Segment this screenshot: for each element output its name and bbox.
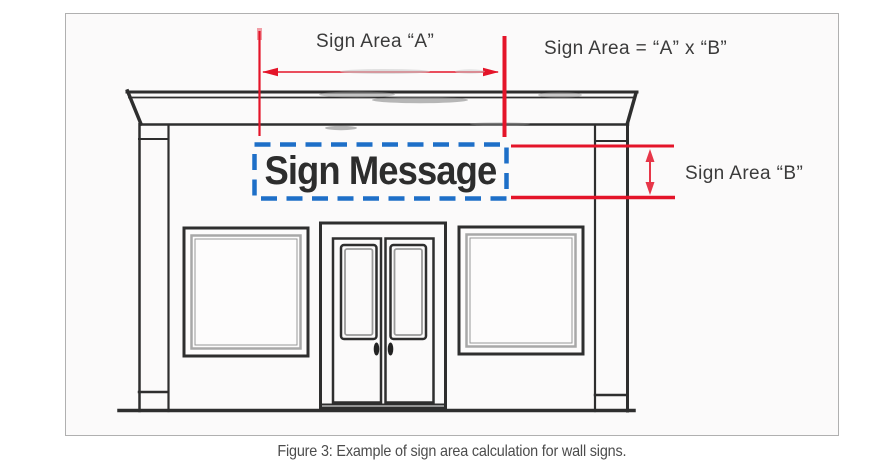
building-line-art: [119, 91, 637, 411]
vertical-dimension-arrow-icon: [646, 149, 655, 195]
left-display-window: [184, 228, 308, 356]
right-display-window: [459, 227, 583, 354]
left-pilaster: [139, 124, 169, 411]
sign-message-text: Sign Message: [254, 144, 507, 199]
height-dimension-label: Sign Area “B”: [685, 163, 803, 185]
scan-fade-patches: [340, 69, 485, 74]
storefront-drawing: [0, 0, 887, 470]
area-formula-label: Sign Area = “A” x “B”: [544, 38, 727, 60]
door-handle-icon: [374, 343, 380, 356]
figure-caption: Figure 3: Example of sign area calculati…: [65, 443, 838, 461]
width-dimension-label: Sign Area “A”: [316, 31, 434, 53]
figure-caption-inner: Figure 3: Example of sign area calculati…: [277, 443, 626, 461]
sign-message-inner: Sign Message: [265, 149, 497, 194]
door-handle-icon: [388, 343, 394, 356]
right-pilaster: [595, 124, 628, 411]
entry-doors: [321, 223, 446, 408]
figure-page: Sign Area “A” Sign Area = “A” x “B” Sign…: [0, 0, 887, 470]
